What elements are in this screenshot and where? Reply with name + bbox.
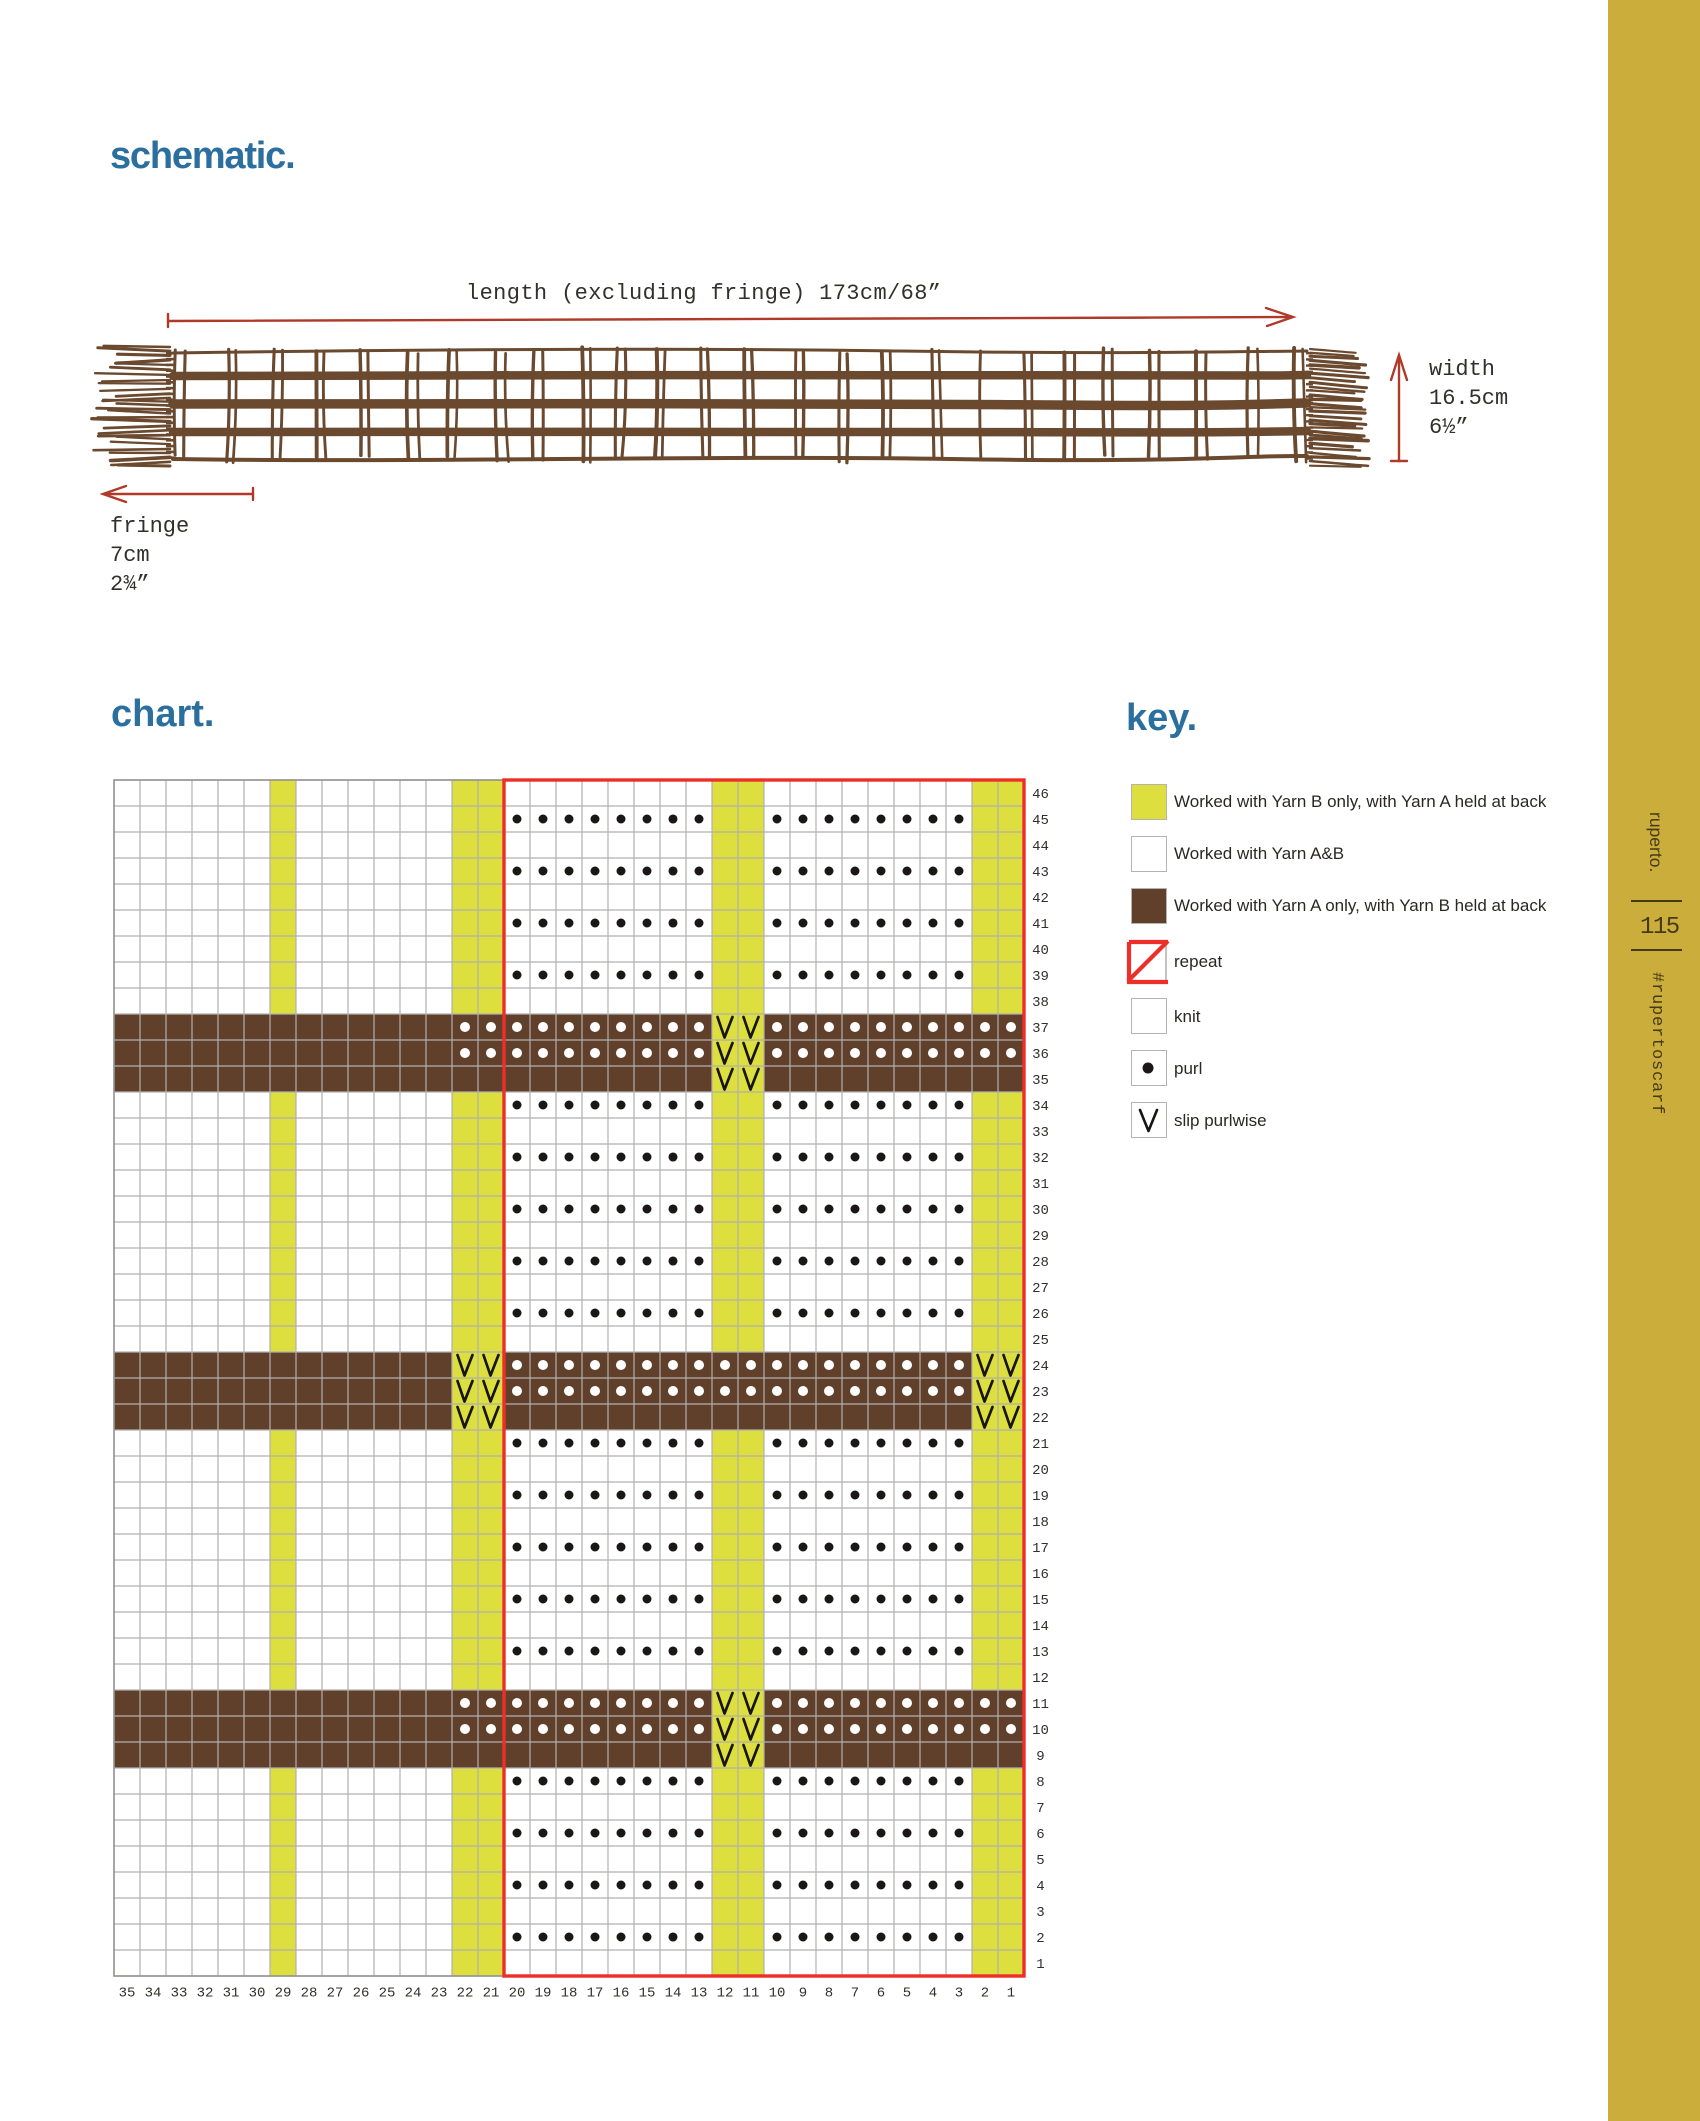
svg-text:5: 5	[1036, 1853, 1044, 1869]
svg-text:42: 42	[1032, 891, 1049, 907]
svg-text:14: 14	[665, 1986, 682, 2002]
svg-text:37: 37	[1032, 1021, 1049, 1037]
svg-text:41: 41	[1032, 917, 1049, 933]
svg-text:27: 27	[1032, 1281, 1049, 1297]
svg-text:18: 18	[561, 1986, 578, 2002]
svg-text:43: 43	[1032, 865, 1049, 881]
svg-text:25: 25	[379, 1986, 396, 2002]
svg-text:29: 29	[1032, 1229, 1049, 1245]
svg-text:46: 46	[1032, 787, 1049, 803]
svg-text:40: 40	[1032, 943, 1049, 959]
svg-text:26: 26	[1032, 1307, 1049, 1323]
svg-text:4: 4	[1036, 1879, 1044, 1895]
svg-text:31: 31	[1032, 1177, 1049, 1193]
svg-text:9: 9	[799, 1986, 807, 2002]
svg-text:15: 15	[639, 1986, 656, 2002]
svg-text:15: 15	[1032, 1593, 1049, 1609]
svg-text:20: 20	[1032, 1463, 1049, 1479]
svg-text:17: 17	[1032, 1541, 1049, 1557]
svg-text:5: 5	[903, 1986, 911, 2002]
svg-text:22: 22	[457, 1986, 474, 2002]
svg-text:8: 8	[825, 1986, 833, 2002]
svg-text:23: 23	[1032, 1385, 1049, 1401]
svg-text:25: 25	[1032, 1333, 1049, 1349]
svg-text:2: 2	[981, 1986, 989, 2002]
svg-text:39: 39	[1032, 969, 1049, 985]
svg-text:27: 27	[327, 1986, 344, 2002]
svg-text:36: 36	[1032, 1047, 1049, 1063]
svg-text:35: 35	[119, 1986, 136, 2002]
svg-text:1: 1	[1007, 1986, 1015, 2002]
svg-text:19: 19	[535, 1986, 552, 2002]
svg-text:26: 26	[353, 1986, 370, 2002]
svg-text:10: 10	[769, 1986, 786, 2002]
svg-text:32: 32	[1032, 1151, 1049, 1167]
svg-text:28: 28	[1032, 1255, 1049, 1271]
svg-text:1: 1	[1036, 1957, 1044, 1973]
svg-text:16: 16	[613, 1986, 630, 2002]
svg-text:11: 11	[1032, 1697, 1049, 1713]
svg-text:3: 3	[955, 1986, 963, 2002]
svg-text:4: 4	[929, 1986, 937, 2002]
svg-text:21: 21	[483, 1986, 500, 2002]
svg-text:30: 30	[249, 1986, 266, 2002]
svg-text:34: 34	[1032, 1099, 1049, 1115]
svg-text:17: 17	[587, 1986, 604, 2002]
svg-text:11: 11	[743, 1986, 760, 2002]
svg-text:13: 13	[691, 1986, 708, 2002]
svg-text:18: 18	[1032, 1515, 1049, 1531]
svg-text:9: 9	[1036, 1749, 1044, 1765]
svg-text:32: 32	[197, 1986, 214, 2002]
svg-text:6: 6	[1036, 1827, 1044, 1843]
svg-text:12: 12	[1032, 1671, 1049, 1687]
svg-text:7: 7	[851, 1986, 859, 2002]
svg-text:34: 34	[145, 1986, 162, 2002]
svg-text:3: 3	[1036, 1905, 1044, 1921]
svg-text:14: 14	[1032, 1619, 1049, 1635]
svg-text:2: 2	[1036, 1931, 1044, 1947]
svg-text:24: 24	[1032, 1359, 1049, 1375]
svg-text:8: 8	[1036, 1775, 1044, 1791]
svg-text:45: 45	[1032, 813, 1049, 829]
svg-text:16: 16	[1032, 1567, 1049, 1583]
svg-text:13: 13	[1032, 1645, 1049, 1661]
svg-text:33: 33	[1032, 1125, 1049, 1141]
svg-text:19: 19	[1032, 1489, 1049, 1505]
svg-text:24: 24	[405, 1986, 422, 2002]
svg-text:23: 23	[431, 1986, 448, 2002]
svg-text:33: 33	[171, 1986, 188, 2002]
svg-text:10: 10	[1032, 1723, 1049, 1739]
svg-text:44: 44	[1032, 839, 1049, 855]
svg-text:38: 38	[1032, 995, 1049, 1011]
svg-text:12: 12	[717, 1986, 734, 2002]
svg-text:22: 22	[1032, 1411, 1049, 1427]
svg-text:29: 29	[275, 1986, 292, 2002]
svg-text:20: 20	[509, 1986, 526, 2002]
svg-text:21: 21	[1032, 1437, 1049, 1453]
svg-text:30: 30	[1032, 1203, 1049, 1219]
svg-text:28: 28	[301, 1986, 318, 2002]
svg-text:35: 35	[1032, 1073, 1049, 1089]
svg-text:7: 7	[1036, 1801, 1044, 1817]
svg-text:6: 6	[877, 1986, 885, 2002]
svg-text:31: 31	[223, 1986, 240, 2002]
